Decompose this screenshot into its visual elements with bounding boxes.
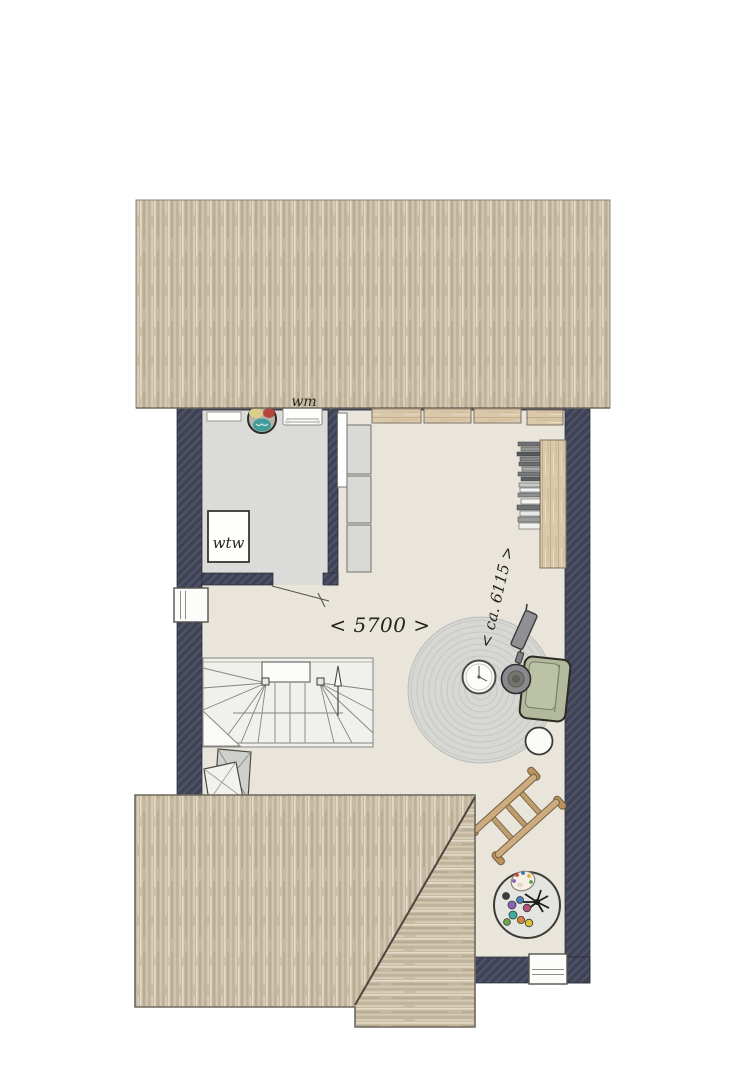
upper-roof-surface bbox=[136, 200, 610, 408]
laundry-bottom-wall-post bbox=[323, 573, 338, 585]
side-table bbox=[463, 661, 496, 694]
pouf bbox=[526, 728, 553, 755]
winder-staircase bbox=[203, 658, 373, 747]
bottom-facade-window bbox=[529, 954, 567, 984]
dimension-width: < 5700 > bbox=[329, 613, 430, 637]
wall-shelf bbox=[207, 412, 241, 421]
laundry-basket bbox=[248, 405, 276, 433]
wardrobe-cabinets bbox=[372, 407, 563, 425]
floor-plan-page: wm wtw < 5700 > < ca. 6115 > bbox=[0, 0, 744, 1080]
floor-plan-canvas: wm wtw < 5700 > < ca. 6115 > bbox=[0, 0, 744, 1080]
book-spines bbox=[517, 442, 540, 529]
label-heat-recovery: wtw bbox=[213, 534, 245, 552]
storage-cabinets bbox=[347, 425, 371, 572]
lower-roof-surface bbox=[135, 795, 475, 1027]
open-door-leaf bbox=[338, 413, 348, 487]
laundry-bottom-wall bbox=[202, 573, 273, 585]
right-wall bbox=[565, 408, 590, 983]
newel-post-right bbox=[317, 678, 324, 685]
laundry-right-wall bbox=[328, 408, 338, 585]
newel-post-left bbox=[262, 678, 269, 685]
left-facade-window bbox=[174, 588, 208, 622]
label-washing-machine: wm bbox=[291, 394, 316, 410]
